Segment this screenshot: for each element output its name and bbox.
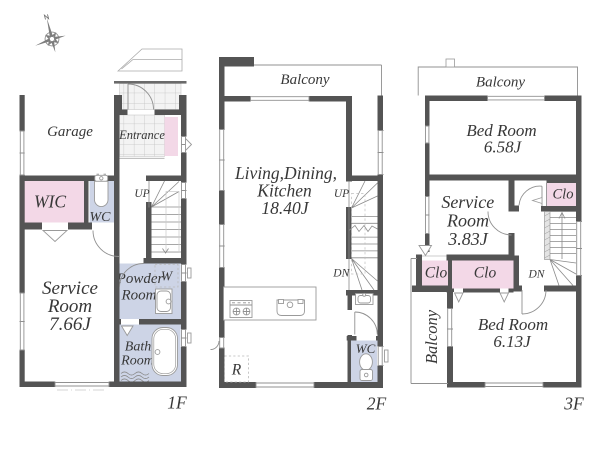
svg-text:WC: WC [90, 210, 112, 225]
svg-text:6.58J: 6.58J [484, 138, 523, 157]
svg-text:R: R [231, 362, 242, 379]
svg-text:Room: Room [121, 288, 157, 304]
svg-text:UP: UP [134, 188, 149, 200]
svg-text:Clo: Clo [553, 187, 574, 203]
svg-text:Room: Room [446, 211, 489, 231]
svg-text:Entrance: Entrance [118, 128, 165, 142]
svg-text:UP: UP [334, 188, 349, 200]
svg-text:DN: DN [528, 269, 546, 281]
svg-text:Balcony: Balcony [422, 309, 441, 364]
svg-text:Garage: Garage [47, 124, 93, 140]
svg-text:Service: Service [441, 192, 494, 212]
svg-text:6.13J: 6.13J [493, 332, 532, 351]
svg-text:7.66J: 7.66J [49, 314, 92, 335]
svg-text:3.83J: 3.83J [447, 229, 489, 249]
svg-text:2F: 2F [367, 394, 387, 414]
svg-text:18.40J: 18.40J [261, 198, 309, 218]
svg-text:WIC: WIC [34, 192, 66, 212]
svg-text:Room: Room [120, 354, 154, 369]
svg-text:Bath: Bath [125, 340, 151, 355]
svg-text:3F: 3F [563, 393, 584, 413]
svg-text:DN: DN [332, 268, 350, 280]
svg-text:Balcony: Balcony [280, 72, 329, 88]
svg-text:W: W [161, 269, 174, 284]
svg-text:Clo: Clo [474, 265, 497, 282]
svg-text:1F: 1F [167, 393, 187, 413]
svg-text:Balcony: Balcony [476, 75, 525, 91]
svg-text:Clo: Clo [425, 265, 448, 282]
svg-text:Powder: Powder [116, 271, 164, 287]
